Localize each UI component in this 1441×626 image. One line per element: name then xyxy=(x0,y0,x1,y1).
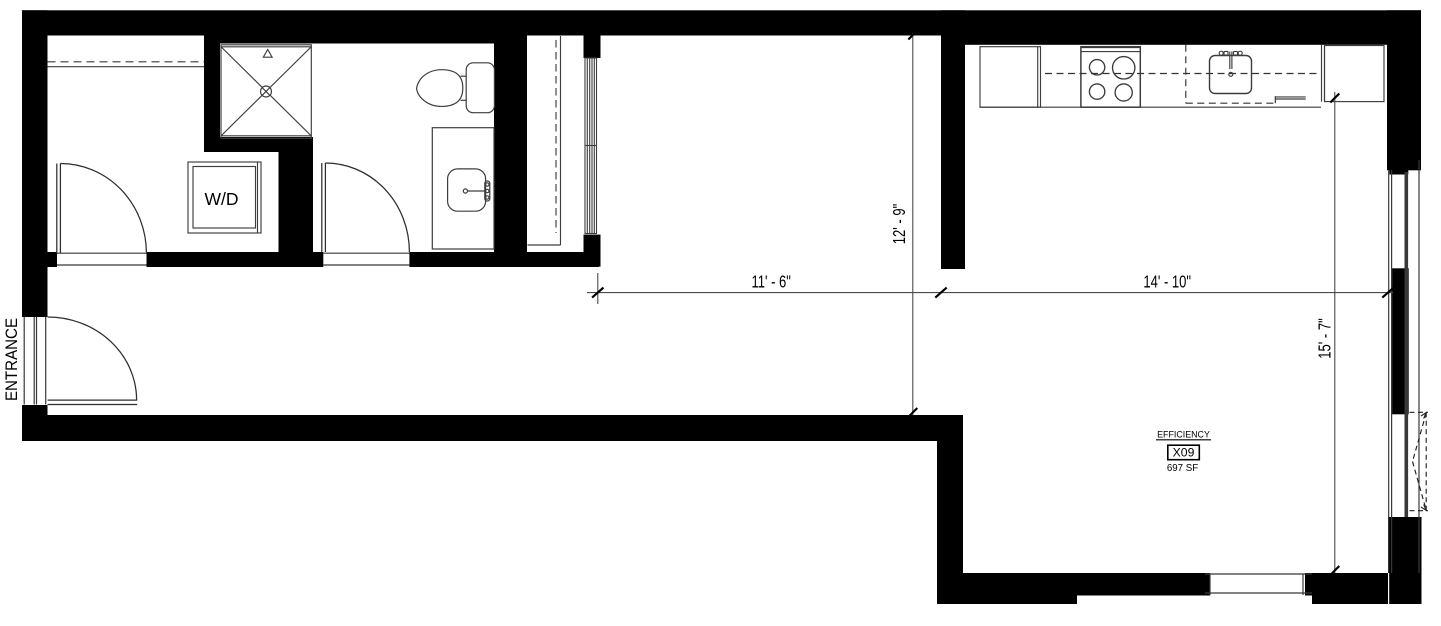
svg-text:EFFICIENCY: EFFICIENCY xyxy=(1157,429,1210,439)
svg-text:W/D: W/D xyxy=(204,189,238,209)
svg-text:12' - 9": 12' - 9" xyxy=(890,204,909,244)
svg-text:X09: X09 xyxy=(1173,446,1195,460)
svg-text:11' - 6": 11' - 6" xyxy=(751,273,790,292)
svg-text:14' - 10": 14' - 10" xyxy=(1143,273,1191,292)
svg-text:15' - 7": 15' - 7" xyxy=(1316,318,1335,358)
svg-text:ENTRANCE: ENTRANCE xyxy=(3,318,21,401)
svg-text:697 SF: 697 SF xyxy=(1167,463,1198,474)
